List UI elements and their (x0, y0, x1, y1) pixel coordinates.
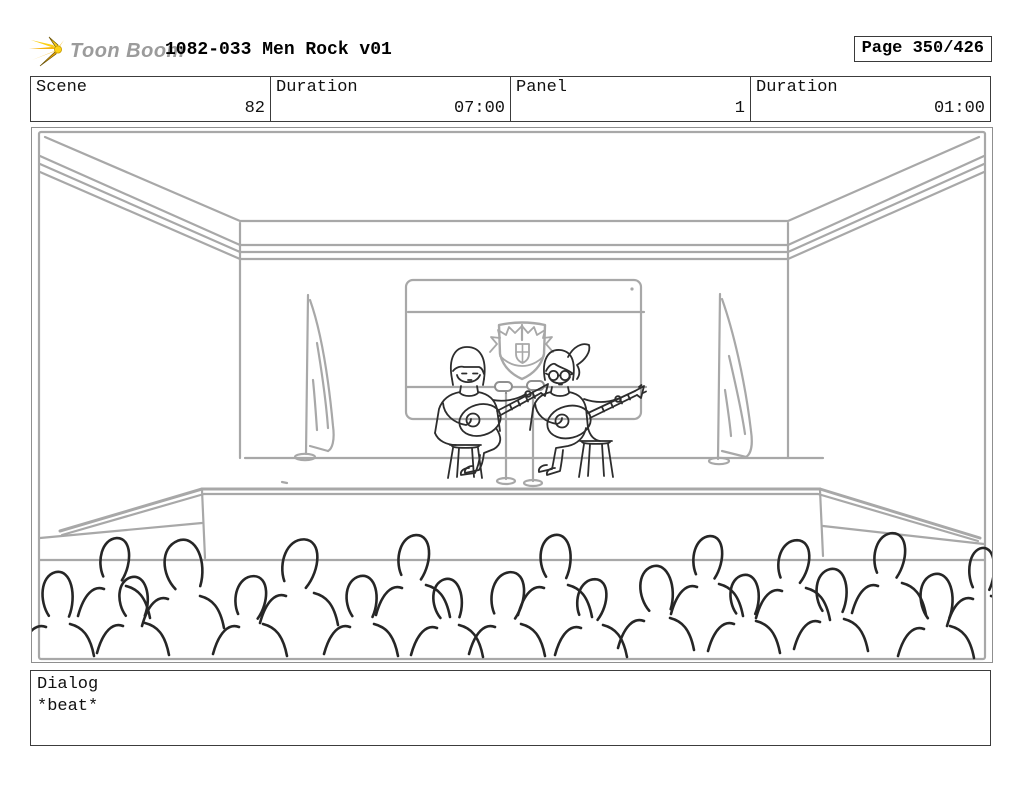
audience-shoulders (78, 586, 150, 618)
page-indicator: Page 350/426 (854, 36, 992, 62)
audience-head (40, 571, 75, 620)
audience-head (873, 531, 908, 578)
panel-duration-label: Duration (756, 78, 985, 98)
audience-head (279, 536, 320, 589)
scene-value: 82 (36, 99, 265, 119)
audience-shoulders (142, 596, 224, 628)
audience-shoulders (32, 624, 94, 656)
storyboard-sketch (32, 128, 992, 662)
dialog-box: Dialog *beat* (30, 670, 991, 746)
audience-shoulders (324, 624, 398, 656)
audience-head (490, 570, 527, 619)
toonboom-logo: Toon Boom (28, 36, 185, 67)
document-title: 1082-033 Men Rock v01 (165, 40, 392, 60)
audience-head (345, 575, 379, 619)
audience-shoulders (97, 623, 169, 655)
audience-head (117, 575, 151, 619)
audience-shoulders (708, 621, 780, 653)
audience-crowd (32, 531, 992, 658)
page-header: Toon Boom 1082-033 Men Rock v01 Page 350… (28, 36, 994, 70)
audience-shoulders (555, 625, 627, 657)
panel-info-bar: Scene 82 Duration 07:00 Panel 1 Duration… (30, 76, 991, 122)
info-cell-panel-duration: Duration 01:00 (751, 77, 990, 121)
audience-head (969, 548, 992, 590)
panel-value: 1 (516, 99, 745, 119)
scene-duration-value: 07:00 (276, 99, 505, 119)
audience-head (692, 535, 724, 579)
scene-label: Scene (36, 78, 265, 98)
audience-head (397, 534, 431, 580)
audience-shoulders (260, 593, 338, 625)
audience-head (728, 574, 760, 617)
storyboard-pdf-page: Toon Boom 1082-033 Men Rock v01 Page 350… (0, 0, 1024, 793)
audience-shoulders (898, 626, 974, 658)
panel-duration-value: 01:00 (756, 99, 985, 119)
audience-head (159, 536, 207, 593)
audience-head (99, 537, 130, 581)
info-cell-scene: Scene 82 (31, 77, 271, 121)
scene-duration-label: Duration (276, 78, 505, 98)
audience-head (430, 577, 465, 621)
audience-shoulders (852, 583, 926, 615)
audience-shoulders (376, 585, 450, 617)
audience-shoulders (411, 625, 483, 657)
audience-shoulders (794, 619, 868, 651)
toonboom-starburst-icon (28, 36, 66, 67)
dialog-text: *beat* (37, 696, 984, 718)
info-cell-panel: Panel 1 (511, 77, 751, 121)
info-cell-scene-duration: Duration 07:00 (271, 77, 511, 121)
audience-head (539, 534, 572, 580)
audience-head (636, 563, 677, 614)
audience-shoulders (618, 618, 694, 650)
panel-label: Panel (516, 78, 745, 98)
audience-head (815, 568, 849, 614)
storyboard-panel-frame (31, 127, 993, 663)
dialog-label: Dialog (37, 674, 984, 696)
room-sketch (39, 132, 985, 659)
